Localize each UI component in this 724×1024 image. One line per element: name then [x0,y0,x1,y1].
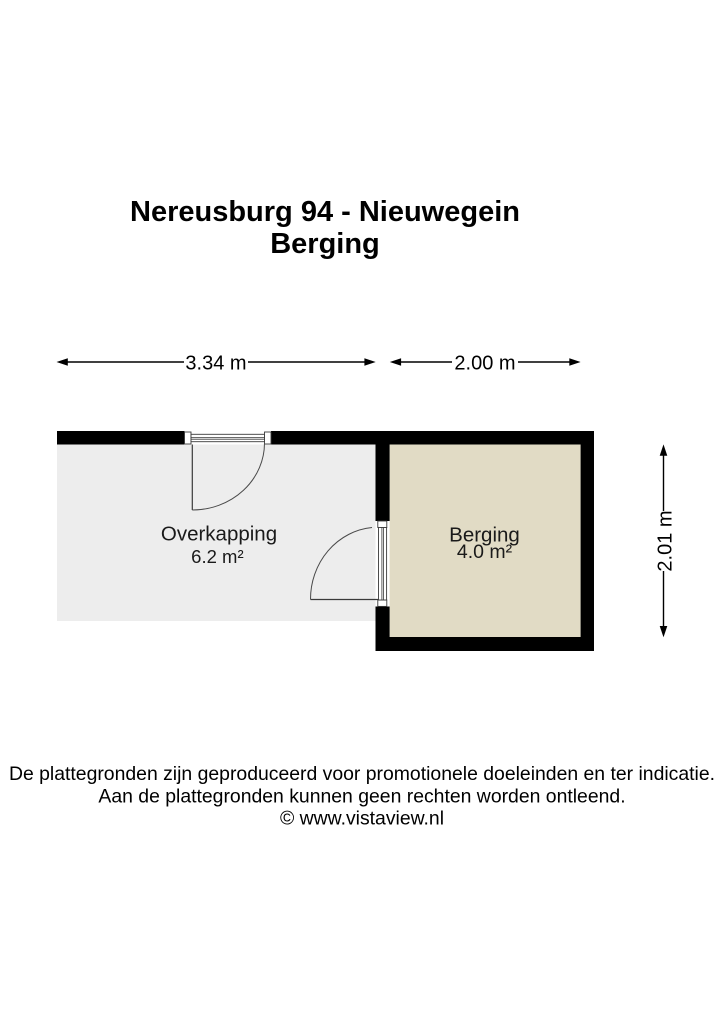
svg-text:6.2 m²: 6.2 m² [191,546,243,567]
svg-text:4.0 m²: 4.0 m² [457,541,513,563]
svg-text:Overkapping: Overkapping [161,523,277,546]
svg-text:© www.vistaview.nl: © www.vistaview.nl [280,808,444,830]
svg-text:De plattegronden zijn geproduc: De plattegronden zijn geproduceerd voor … [9,763,715,785]
svg-text:Berging: Berging [270,228,380,260]
svg-text:Nereusburg 94 - Nieuwegein: Nereusburg 94 - Nieuwegein [130,196,520,228]
svg-text:Aan de plattegronden kunnen ge: Aan de plattegronden kunnen geen rechten… [98,786,625,808]
svg-text:3.34 m: 3.34 m [185,352,246,374]
svg-text:2.00 m: 2.00 m [454,352,515,374]
svg-text:2.01 m: 2.01 m [654,510,676,571]
